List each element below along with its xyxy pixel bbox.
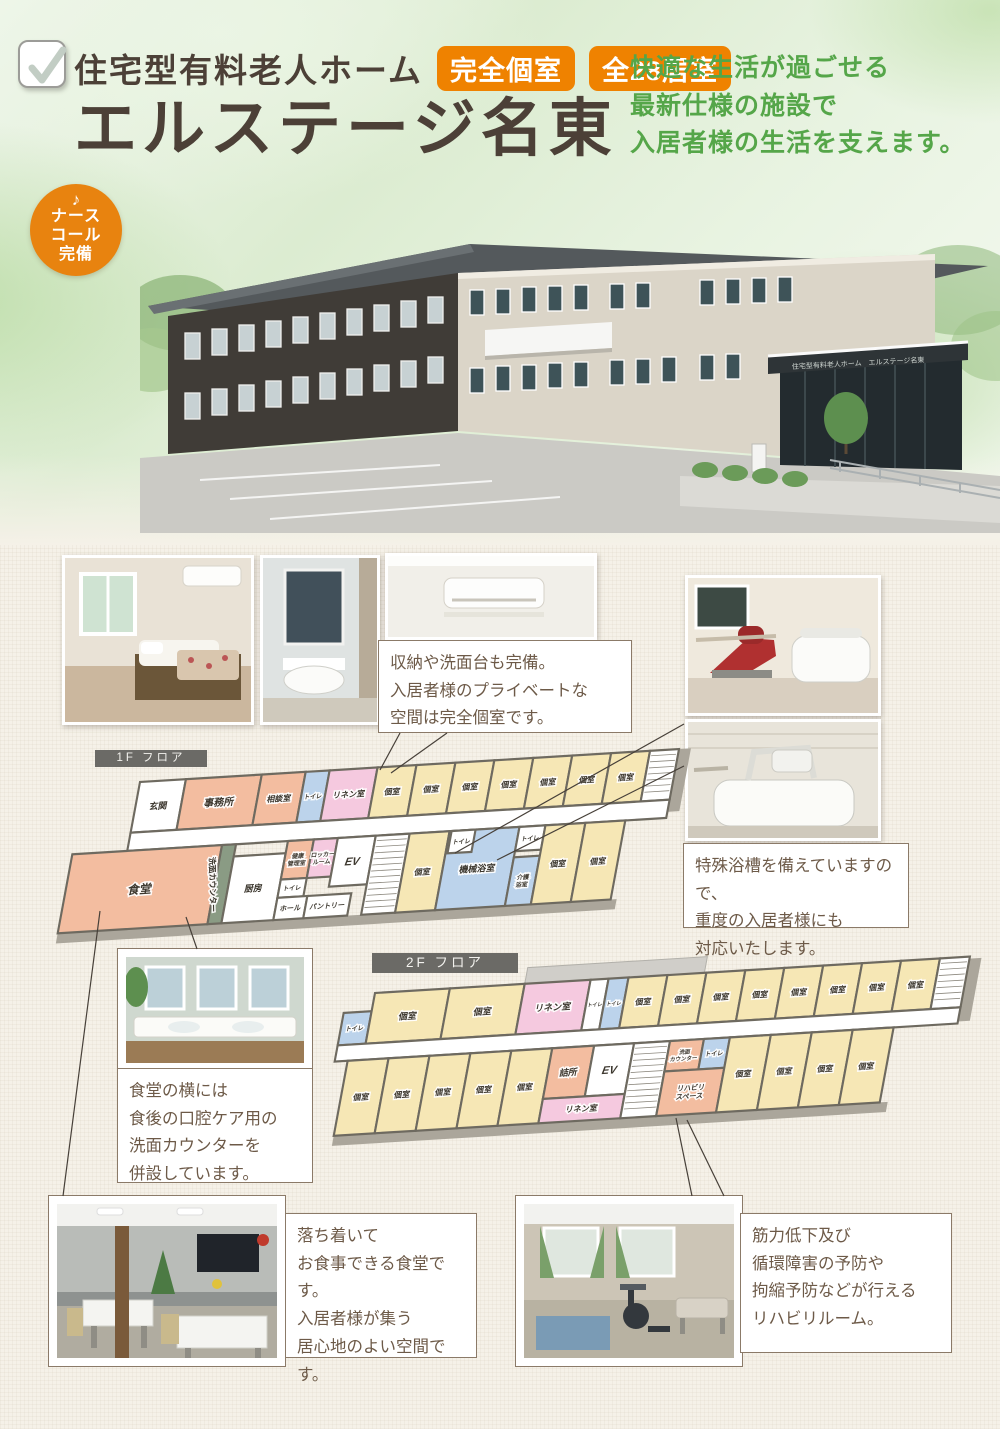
rehab-photo-box — [515, 1195, 743, 1367]
room-label: リネン室 — [534, 1000, 572, 1013]
rehab-photo — [524, 1204, 734, 1358]
callout-rehab: 筋力低下及び 循環障害の予防や 拘縮予防などが行える リハビリルーム。 — [740, 1213, 952, 1353]
room-label: 相談室 — [266, 793, 292, 804]
room-label: トイレ — [587, 1002, 603, 1009]
room-label: トイレ — [704, 1050, 723, 1058]
room-label: 個室 — [775, 1066, 794, 1077]
music-note-icon: ♪ — [30, 184, 122, 208]
room-label: リハビリスペース — [675, 1082, 706, 1101]
brochure-page: 住宅型有料老人ホーム 完全個室 全28居室 エルステージ名東 快適な生活が過ごせ… — [0, 0, 1000, 1429]
room-label: ホール — [279, 904, 301, 913]
room-label: 機械浴室 — [458, 862, 496, 875]
room-label: 個室 — [538, 776, 557, 787]
callout-dining: 落ち着いて お食事できる食堂です。 入居者様が集う 居心地のよい空間です。 — [285, 1213, 477, 1358]
checkbox-icon — [18, 40, 66, 88]
nurse-call-badge: ♪ ナース コール 完備 — [30, 184, 122, 276]
room-label: 個室 — [734, 1068, 753, 1079]
private-room-text: 収納や洗面台も完備。 入居者様のプライベートな 空間は完全個室です。 — [379, 641, 631, 742]
washcounter-photo-box — [117, 948, 313, 1072]
room-label: 個室 — [421, 784, 440, 795]
room-label: 個室 — [392, 1089, 411, 1100]
parking-sign — [752, 444, 766, 472]
floor2-header: 2F フロア — [372, 953, 518, 973]
room-label: トイレ — [303, 793, 322, 801]
floor1-header: 1F フロア — [95, 750, 207, 767]
room-label: 個室 — [828, 984, 847, 995]
room-label: リネン室 — [332, 788, 366, 800]
room-label: トイレ — [520, 835, 539, 843]
room-label: トイレ — [282, 885, 301, 893]
room-label: 個室 — [789, 986, 808, 997]
room-label: リネン室 — [565, 1102, 599, 1114]
callout-special-bath: 特殊浴槽を備えていますので、 重度の入居者様にも 対応いたします。 — [683, 843, 909, 928]
room-label: 個室 — [867, 982, 886, 993]
room-label: 洗面カウンター — [207, 856, 218, 913]
room-label: 個室 — [672, 994, 691, 1005]
nurse-call-label: ナース コール 完備 — [30, 208, 122, 265]
rehab-text: 筋力低下及び 循環障害の予防や 拘縮予防などが行える リハビリルーム。 — [741, 1214, 951, 1343]
room-label: 個室 — [460, 781, 479, 792]
building-exterior-photo: 住宅型有料老人ホーム エルステージ名東 — [140, 218, 1000, 533]
floor-rooms: 玄関事務所相談室トイレリネン室個室個室個室個室個室個室個室食堂洗面カウンター厨房… — [56, 748, 691, 943]
room-label: 厨房 — [244, 882, 264, 894]
callout-wash-counter: 食堂の横には 食後の口腔ケア用の 洗面カウンターを 併設しています。 — [117, 1068, 313, 1183]
room-label: 個室 — [474, 1084, 493, 1095]
dining-text: 落ち着いて お食事できる食堂です。 入居者様が集う 居心地のよい空間です。 — [286, 1214, 476, 1398]
room-label: 個室 — [499, 779, 518, 790]
room-label: 個室 — [433, 1086, 452, 1097]
room-label: 個室 — [750, 989, 769, 1000]
room-label: 個室 — [515, 1081, 534, 1092]
floor-plan-1f: 玄関事務所相談室トイレリネン室個室個室個室個室個室個室個室食堂洗面カウンター厨房… — [45, 742, 715, 957]
dining-photo — [57, 1204, 277, 1358]
room-label: 個室 — [616, 772, 635, 783]
callout-private-room: 収納や洗面台も完備。 入居者様のプライベートな 空間は完全個室です。 — [378, 640, 632, 733]
room-label: 詰所 — [559, 1066, 579, 1078]
room-label: 個室 — [633, 996, 652, 1007]
washcounter-photo — [126, 957, 304, 1063]
room-label: 個室 — [412, 866, 431, 877]
check-mark-icon — [23, 38, 75, 94]
bedroom-photo — [62, 555, 254, 725]
facility-title: エルステージ名東 — [74, 78, 617, 169]
room-label: 個室 — [397, 1010, 418, 1022]
room-label: 個室 — [588, 856, 607, 867]
room-label: トイレ — [452, 838, 471, 846]
room-label: 個室 — [711, 991, 730, 1002]
tagline-text: 快適な生活が過ごせる 最新仕様の施設で 入居者様の生活を支えます。 — [630, 50, 966, 163]
room-label: 玄関 — [148, 800, 168, 812]
room-label: 個室 — [906, 979, 925, 990]
wash-counter-text: 食堂の横には 食後の口腔ケア用の 洗面カウンターを 併設しています。 — [118, 1069, 312, 1198]
dining-photo-box — [48, 1195, 286, 1367]
room-label: 個室 — [577, 774, 596, 785]
entrance-tree — [824, 392, 868, 444]
bath-chairs-photo — [685, 575, 881, 716]
room-label: トイレ — [345, 1025, 364, 1033]
aircon-photo — [385, 553, 597, 640]
room-label: トイレ — [606, 1001, 622, 1008]
room-label: 個室 — [856, 1061, 875, 1072]
room-label: 個室 — [382, 786, 401, 797]
entrance-glass — [780, 360, 962, 470]
washbasin-photo — [260, 555, 380, 725]
room-label: 個室 — [472, 1005, 493, 1017]
room-label: 個室 — [815, 1063, 834, 1074]
room-label: 個室 — [548, 858, 567, 869]
room-label: 個室 — [351, 1091, 370, 1102]
room-label: 食堂 — [126, 881, 154, 897]
